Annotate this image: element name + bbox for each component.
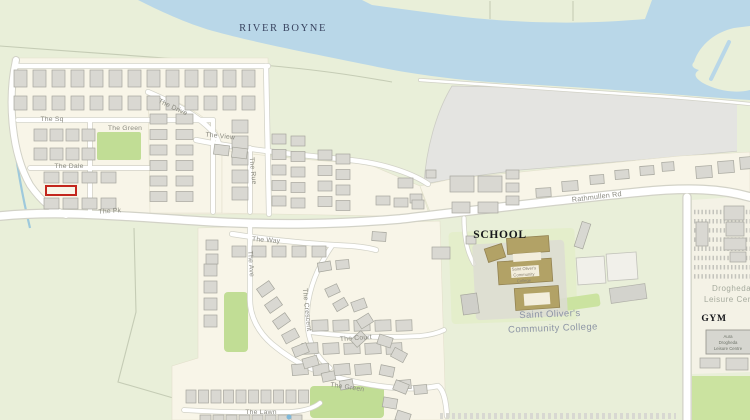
gym-caption: GYM [701, 314, 726, 324]
building [318, 150, 332, 160]
building [204, 281, 217, 293]
building [213, 415, 224, 420]
aura-label-line3: Leisure Centre [714, 346, 743, 351]
building [376, 196, 390, 205]
building [396, 320, 412, 332]
building [231, 147, 247, 159]
building [562, 180, 579, 191]
green-southeast [692, 376, 750, 420]
building [226, 415, 237, 420]
building [261, 390, 271, 403]
building [150, 145, 167, 155]
building [336, 259, 350, 269]
building [291, 183, 305, 193]
building [506, 170, 519, 179]
building [355, 363, 372, 375]
building [394, 198, 408, 207]
building [206, 240, 218, 250]
building [33, 70, 46, 87]
river-label: RIVER BOYNE [239, 23, 327, 34]
building [206, 254, 218, 264]
building [66, 129, 79, 141]
building [726, 222, 744, 236]
building [204, 70, 217, 87]
pool-dot [287, 415, 292, 420]
building [726, 358, 748, 370]
building [312, 320, 328, 332]
building [109, 70, 122, 87]
building [274, 390, 284, 403]
building [372, 232, 387, 242]
building [323, 343, 340, 355]
building [317, 261, 331, 272]
street-label-the-dale: The Dale [54, 163, 83, 170]
building [185, 96, 198, 110]
building [478, 202, 498, 213]
building [506, 196, 519, 205]
building [336, 185, 350, 195]
building [724, 238, 746, 250]
building [223, 96, 236, 110]
building [299, 390, 309, 403]
street-label-the-lawn: The Lawn [245, 409, 276, 416]
building [71, 70, 84, 87]
building [66, 148, 79, 160]
building [44, 172, 59, 183]
building [426, 170, 436, 178]
building [82, 198, 97, 209]
building [615, 170, 630, 180]
building [375, 320, 391, 332]
building [204, 264, 217, 276]
building [176, 161, 193, 171]
building [224, 390, 234, 403]
building [204, 96, 217, 110]
sports-court-2 [606, 252, 638, 281]
building [147, 70, 160, 87]
building [336, 201, 350, 211]
building [200, 415, 211, 420]
leisure-label-line2: Leisure Centre [704, 295, 750, 304]
building [101, 172, 116, 183]
building [291, 136, 305, 146]
building [82, 172, 97, 183]
building [718, 160, 735, 173]
building [291, 415, 302, 420]
school-courtyard-3 [524, 292, 551, 306]
building [186, 390, 196, 403]
building [318, 181, 332, 191]
building [236, 390, 246, 403]
building [199, 390, 209, 403]
building [50, 148, 63, 160]
building [398, 178, 413, 188]
building [213, 144, 229, 156]
building [312, 246, 326, 257]
building [334, 363, 351, 375]
building [318, 197, 332, 207]
building [724, 206, 744, 220]
building [286, 390, 296, 403]
building [14, 70, 27, 87]
building [291, 167, 305, 177]
building [150, 114, 167, 124]
park-the-ave [224, 292, 248, 352]
street-label-the-sq: The Sq [40, 116, 63, 123]
building [382, 397, 398, 409]
building [272, 150, 286, 160]
building [223, 70, 236, 87]
building [318, 166, 332, 176]
school-thin-building [574, 221, 591, 249]
building [90, 70, 103, 87]
building [272, 134, 286, 144]
building [44, 198, 59, 209]
building [272, 246, 286, 257]
building [696, 222, 708, 246]
building [82, 148, 95, 160]
building [176, 130, 193, 140]
building [166, 70, 179, 87]
building [291, 152, 305, 162]
park-the-green-north [97, 132, 141, 160]
building [292, 246, 306, 257]
building [272, 165, 286, 175]
building [50, 129, 63, 141]
map-svg: RIVER BOYNE SCHOOL GYM Saint Oliver's Co… [0, 0, 750, 420]
building [150, 161, 167, 171]
building [336, 154, 350, 164]
building [662, 162, 675, 172]
college-building-label-3: College [517, 278, 532, 284]
building [82, 129, 95, 141]
building [272, 196, 286, 206]
building [242, 96, 255, 110]
school-outbuilding [461, 293, 480, 315]
building [506, 183, 519, 192]
sports-court-1 [576, 256, 606, 285]
building [33, 96, 46, 110]
building [52, 96, 65, 110]
building [414, 384, 428, 394]
street-label-the-green-north: The Green [108, 125, 142, 132]
college-name-line1: Saint Oliver's [519, 308, 581, 321]
map-canvas[interactable]: RIVER BOYNE SCHOOL GYM Saint Oliver's Co… [0, 0, 750, 420]
building [176, 192, 193, 202]
building [249, 390, 259, 403]
building [272, 181, 286, 191]
building [333, 320, 349, 332]
building [232, 170, 248, 183]
building [740, 157, 750, 170]
building [52, 70, 65, 87]
college-name-line2: Community College [508, 321, 598, 335]
building [14, 96, 27, 110]
sports-slab [609, 284, 647, 304]
building [34, 148, 47, 160]
building [640, 166, 655, 176]
building [336, 170, 350, 180]
road-4 [266, 66, 269, 214]
building [109, 96, 122, 110]
building [452, 202, 470, 213]
building [450, 176, 474, 192]
building [432, 247, 450, 259]
building [185, 70, 198, 87]
building [536, 188, 551, 198]
building [478, 176, 502, 192]
building [730, 252, 746, 262]
leisure-label-line1: Drogheda [712, 284, 750, 293]
building [150, 130, 167, 140]
building [176, 176, 193, 186]
building [150, 192, 167, 202]
building [128, 96, 141, 110]
building [204, 315, 217, 327]
aura-label-line1: Aura [723, 334, 733, 339]
building [232, 246, 246, 257]
building [700, 358, 720, 368]
building [232, 187, 248, 200]
school-caption: SCHOOL [473, 229, 526, 241]
building [176, 145, 193, 155]
building [150, 176, 167, 186]
building [204, 298, 217, 310]
building [90, 96, 103, 110]
building [232, 120, 248, 133]
building [128, 70, 141, 87]
building [71, 96, 84, 110]
building [291, 198, 305, 208]
building [412, 200, 424, 209]
building [63, 172, 78, 183]
building [34, 129, 47, 141]
building [590, 175, 605, 185]
aura-label-line2: Drogheda [719, 340, 738, 345]
building [211, 390, 221, 403]
building [63, 198, 78, 209]
building [696, 165, 713, 178]
building [242, 70, 255, 87]
